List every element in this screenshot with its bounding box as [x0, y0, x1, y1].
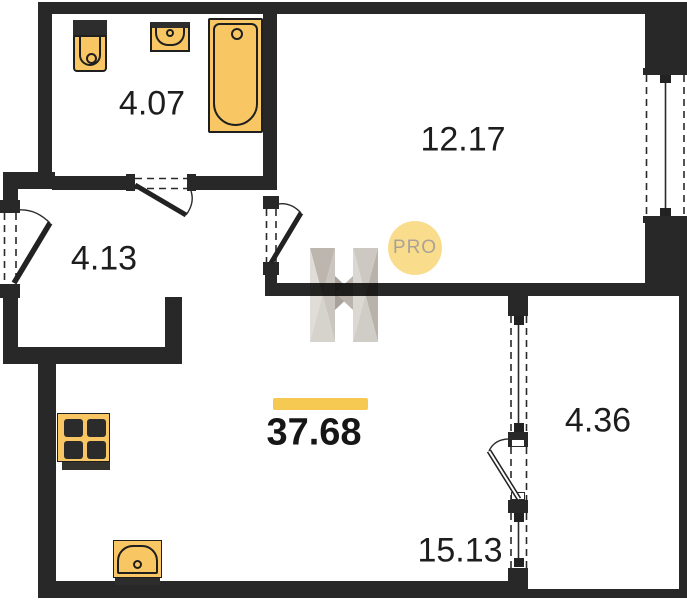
total-area-accent-bar [273, 398, 368, 410]
door-swing-arcs [17, 191, 512, 451]
bathroom-door-arc [186, 191, 192, 215]
balcony-door-arc [489, 439, 512, 451]
room-label-balcony: 4.36 [565, 402, 631, 441]
bedroom-door-arc [278, 204, 301, 213]
window-glass-lines [519, 75, 666, 564]
mullion-stop [514, 558, 524, 567]
entrance-door-leaf [14, 223, 50, 283]
mullion-stop [660, 75, 671, 83]
pro-badge: PRO [388, 221, 442, 275]
room-label-bathroom: 4.07 [119, 85, 185, 124]
h-logo-facets [310, 248, 378, 342]
window-mullion-stops [514, 75, 671, 567]
room-label-hallway: 4.13 [71, 240, 137, 279]
mullion-stop [514, 513, 524, 522]
bathroom-door-leaf [135, 185, 186, 215]
total-area-label: 37.68 [266, 412, 361, 455]
room-label-bedroom: 12.17 [420, 121, 505, 160]
watermark-h-logo [308, 246, 380, 344]
entrance-door-arc [17, 210, 50, 223]
balcony-door-leaf-inner [489, 451, 519, 499]
mullion-stop [514, 423, 524, 432]
mullion-stop [514, 316, 524, 325]
room-label-living-kitchen: 15.13 [417, 532, 502, 571]
mullion-stop [660, 208, 671, 216]
floor-plan: PRO 4.07 12.17 4.13 4.36 15.13 37.68 [0, 0, 687, 600]
